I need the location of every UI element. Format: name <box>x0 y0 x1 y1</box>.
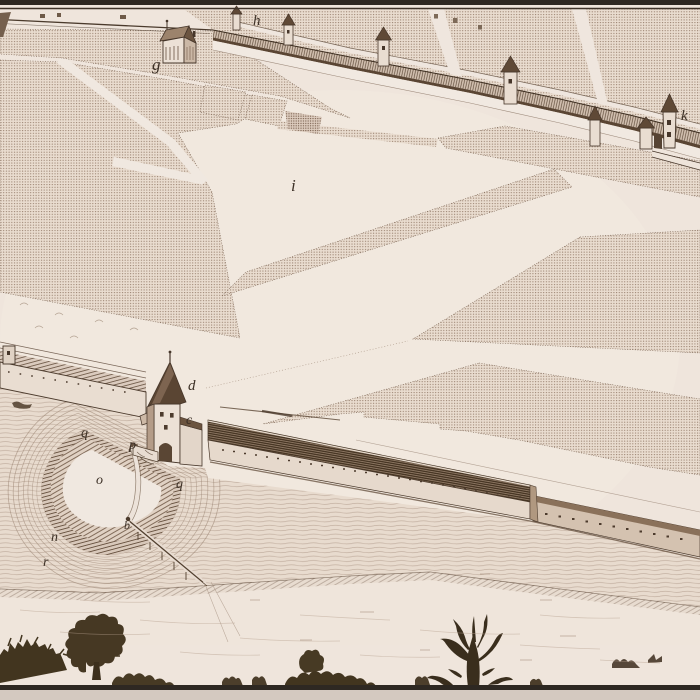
svg-text:k: k <box>681 108 688 124</box>
svg-text:q: q <box>176 477 183 492</box>
svg-text:g: g <box>152 55 161 74</box>
svg-text:h: h <box>253 13 261 29</box>
svg-text:d: d <box>188 378 196 394</box>
svg-text:b: b <box>124 518 130 532</box>
svg-text:c: c <box>186 413 193 428</box>
svg-text:i: i <box>291 176 296 195</box>
svg-text:n: n <box>51 530 58 545</box>
svg-text:q: q <box>81 426 88 441</box>
svg-text:o: o <box>96 473 103 488</box>
svg-text:p: p <box>128 438 136 453</box>
svg-text:r: r <box>43 555 49 570</box>
